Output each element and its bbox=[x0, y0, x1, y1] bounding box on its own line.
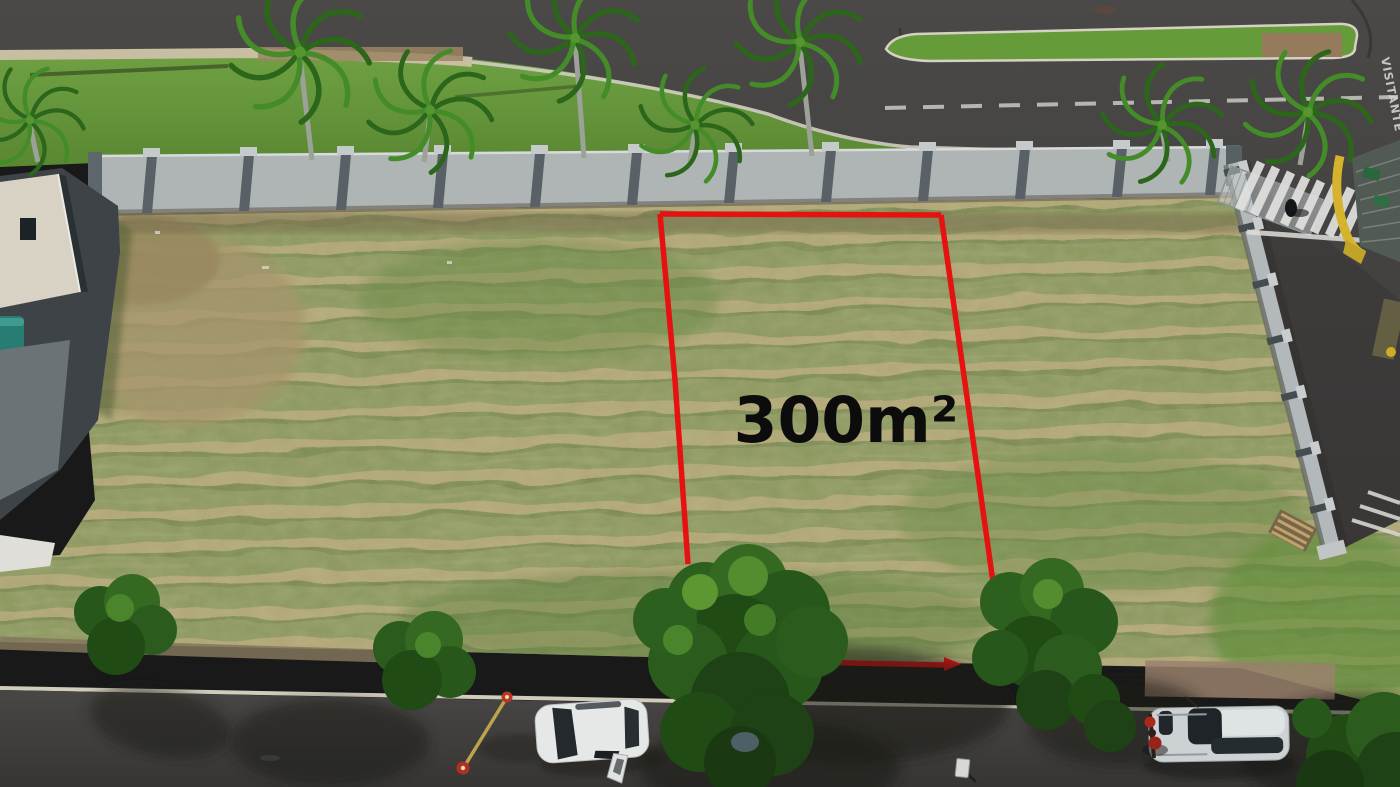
scene-canvas: VISITANTE bbox=[0, 0, 1400, 787]
vignette bbox=[0, 0, 1400, 787]
aerial-photo-vacant-lot: VISITANTE bbox=[0, 0, 1400, 787]
